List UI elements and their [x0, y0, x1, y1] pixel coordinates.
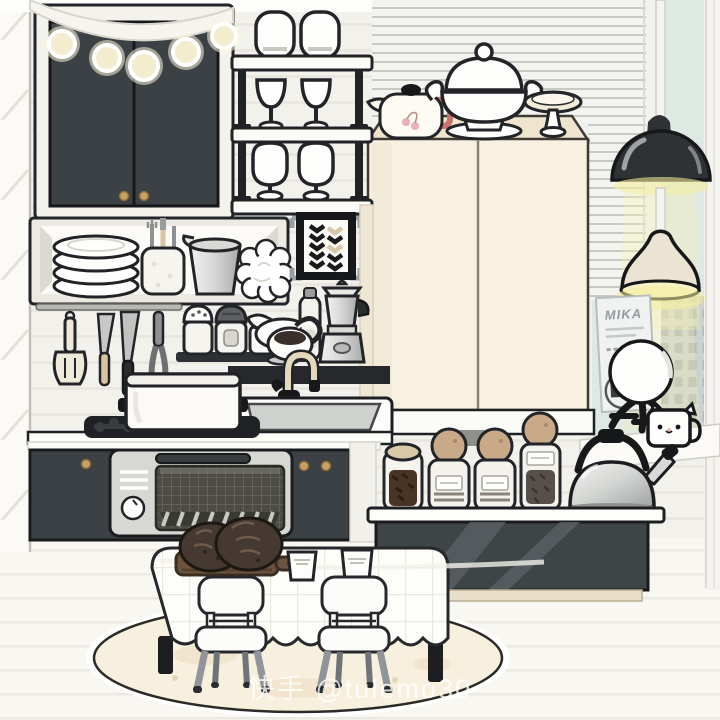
pepper-shaker[interactable] [216, 306, 246, 354]
kitchen-scene: MIKA [0, 0, 720, 720]
table-leg [158, 636, 173, 674]
scene-canvas: MIKA [0, 0, 720, 720]
paper-cup[interactable] [288, 552, 316, 580]
rack-shelf [232, 128, 372, 142]
dish-shelf[interactable] [30, 218, 293, 304]
oven-handle[interactable] [156, 454, 250, 463]
salt-shaker[interactable] [184, 306, 212, 354]
rack-shelf [232, 56, 372, 70]
cabinet-knob [300, 462, 309, 471]
cabinet-knob [322, 462, 331, 471]
rack-shelf [232, 200, 372, 214]
island-countertop [368, 508, 664, 522]
lamp-cord [656, 0, 665, 120]
plate-stack[interactable] [54, 236, 138, 297]
cabinet-knob [82, 460, 91, 469]
stemless-glass[interactable] [256, 12, 294, 58]
storage-jar-striped-1[interactable] [429, 429, 469, 510]
storage-jar-striped-2[interactable] [475, 429, 515, 510]
storage-jar-beans[interactable] [384, 444, 422, 510]
stockpot[interactable] [118, 374, 248, 430]
watermark-text: 快手 @tulemo30 [248, 674, 472, 704]
cabinet-knob [120, 192, 129, 201]
kettle-grip [598, 429, 624, 443]
poster-title: MIKA [604, 306, 642, 323]
bread-loaves[interactable] [180, 518, 282, 571]
refrigerator[interactable] [362, 116, 594, 446]
ruffle-decor[interactable] [236, 240, 293, 302]
stemless-glass[interactable] [301, 12, 339, 58]
left-door-frame [0, 0, 30, 552]
chevron-art-frame[interactable] [292, 212, 360, 280]
cabinet-knob [140, 192, 149, 201]
storage-jar-tall[interactable] [521, 413, 560, 510]
